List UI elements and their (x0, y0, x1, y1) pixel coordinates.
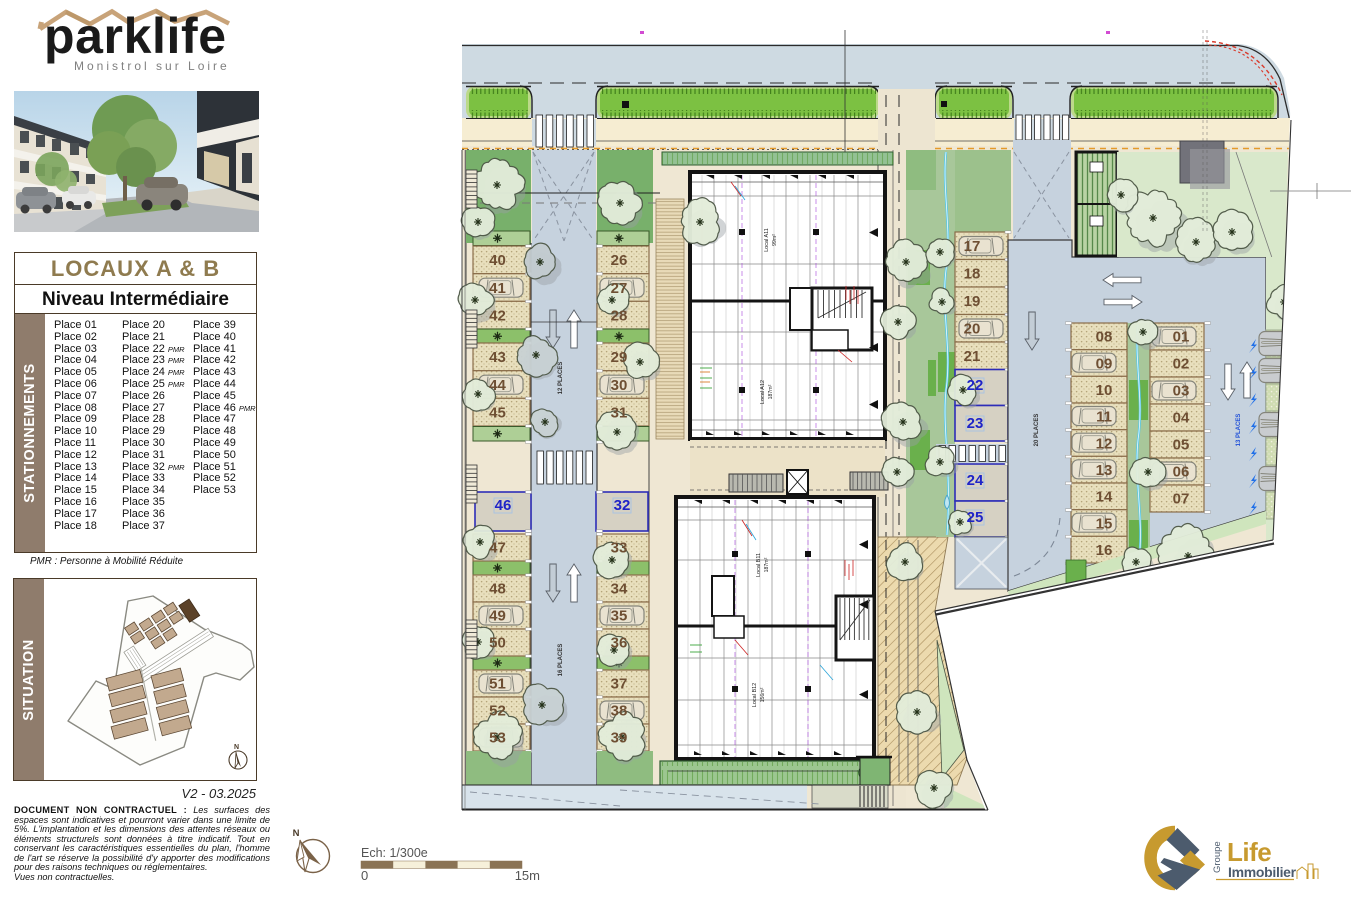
svg-text:41: 41 (489, 280, 506, 297)
svg-text:02: 02 (1173, 356, 1190, 373)
svg-text:24: 24 (967, 472, 984, 489)
svg-text:15: 15 (1096, 515, 1113, 532)
svg-text:23: 23 (967, 415, 984, 432)
svg-text:20: 20 (964, 320, 981, 337)
svg-text:51: 51 (489, 676, 506, 693)
svg-text:22: 22 (967, 377, 984, 394)
svg-text:99m²: 99m² (772, 234, 778, 246)
svg-text:46: 46 (495, 497, 512, 514)
svg-text:28: 28 (611, 307, 628, 324)
svg-text:27: 27 (611, 280, 628, 297)
svg-text:Local B12: Local B12 (752, 683, 758, 707)
svg-text:12: 12 (1096, 435, 1113, 452)
svg-text:29: 29 (611, 349, 628, 366)
svg-text:31: 31 (611, 404, 628, 421)
svg-text:07: 07 (1173, 491, 1190, 508)
svg-text:43: 43 (489, 349, 506, 366)
svg-text:25: 25 (967, 509, 984, 526)
svg-text:33: 33 (611, 540, 628, 557)
svg-text:11: 11 (1096, 409, 1112, 426)
svg-text:35: 35 (611, 608, 628, 625)
svg-text:42: 42 (489, 307, 506, 324)
svg-text:156m²: 156m² (760, 687, 766, 702)
svg-text:32: 32 (614, 497, 631, 514)
svg-text:Groupe: Groupe (1212, 841, 1223, 873)
svg-text:15m: 15m (515, 868, 540, 883)
svg-text:49: 49 (489, 608, 506, 625)
svg-text:36: 36 (611, 635, 628, 652)
svg-text:187m²: 187m² (764, 557, 770, 572)
svg-text:Local A12: Local A12 (760, 380, 766, 404)
svg-text:26: 26 (611, 252, 628, 269)
svg-text:53: 53 (489, 730, 506, 747)
svg-text:05: 05 (1173, 437, 1190, 454)
svg-text:10: 10 (1096, 382, 1113, 399)
svg-text:09: 09 (1096, 355, 1113, 372)
svg-text:38: 38 (611, 703, 628, 720)
svg-text:Local A11: Local A11 (764, 228, 770, 252)
svg-text:37: 37 (611, 676, 628, 693)
svg-text:30: 30 (611, 377, 628, 394)
svg-text:16: 16 (1096, 542, 1113, 559)
svg-text:48: 48 (489, 581, 506, 598)
svg-text:Ech: 1/300e: Ech: 1/300e (361, 846, 428, 860)
svg-text:34: 34 (611, 581, 628, 598)
svg-text:16 PLACES: 16 PLACES (558, 644, 564, 677)
svg-text:08: 08 (1096, 329, 1113, 346)
svg-text:39: 39 (611, 730, 628, 747)
svg-text:13 PLACES: 13 PLACES (1236, 414, 1242, 447)
svg-text:14: 14 (1096, 489, 1113, 506)
svg-text:03: 03 (1173, 383, 1190, 400)
svg-text:N: N (293, 828, 300, 839)
svg-text:Life: Life (1227, 837, 1271, 867)
svg-text:06: 06 (1173, 464, 1190, 481)
svg-text:13: 13 (1096, 462, 1113, 479)
svg-text:Local B11: Local B11 (756, 553, 762, 577)
svg-text:04: 04 (1173, 410, 1190, 427)
svg-text:44: 44 (489, 377, 506, 394)
svg-text:47: 47 (489, 540, 506, 557)
svg-text:18: 18 (964, 265, 981, 282)
svg-text:187m²: 187m² (768, 384, 774, 399)
svg-text:0: 0 (361, 868, 368, 883)
svg-text:40: 40 (489, 252, 506, 269)
svg-text:50: 50 (489, 635, 506, 652)
svg-text:52: 52 (489, 703, 506, 720)
svg-text:17: 17 (964, 238, 981, 255)
svg-text:12 PLACES: 12 PLACES (558, 362, 564, 395)
svg-text:20 PLACES: 20 PLACES (1034, 414, 1040, 447)
svg-text:45: 45 (489, 404, 506, 421)
svg-text:Immobilier: Immobilier (1228, 864, 1297, 880)
svg-text:19: 19 (964, 293, 981, 310)
svg-text:21: 21 (964, 348, 981, 365)
svg-text:01: 01 (1173, 329, 1190, 346)
